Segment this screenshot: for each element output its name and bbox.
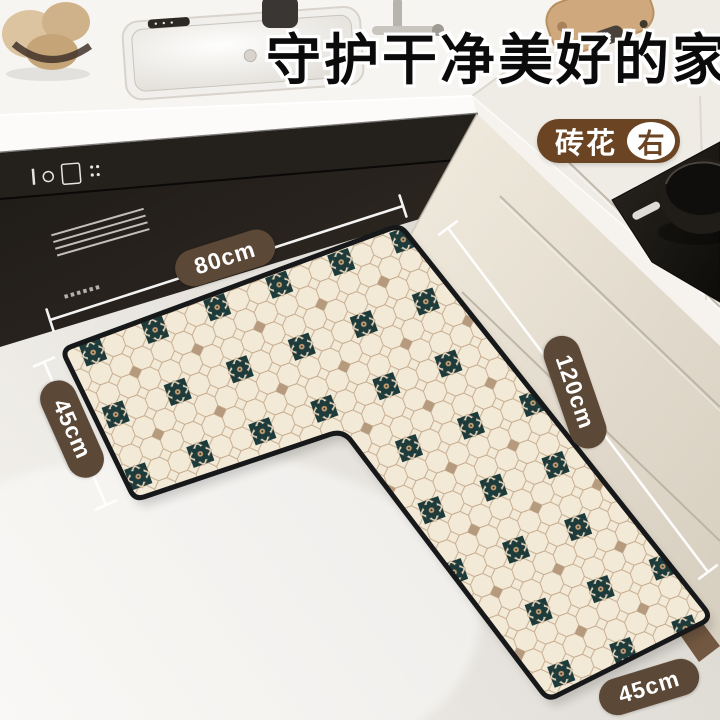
variant-badge-side: 右 — [627, 122, 675, 160]
product-image: 守护干净美好的家 砖花 右 80cm 120cm 45cm 45cm — [0, 0, 720, 720]
utensil-crock — [262, 0, 298, 28]
page-title: 守护干净美好的家 — [266, 30, 706, 91]
variant-badge: 砖花 右 — [537, 119, 680, 163]
variant-badge-label: 砖花 — [555, 120, 617, 162]
kitchen-scene — [0, 0, 720, 720]
